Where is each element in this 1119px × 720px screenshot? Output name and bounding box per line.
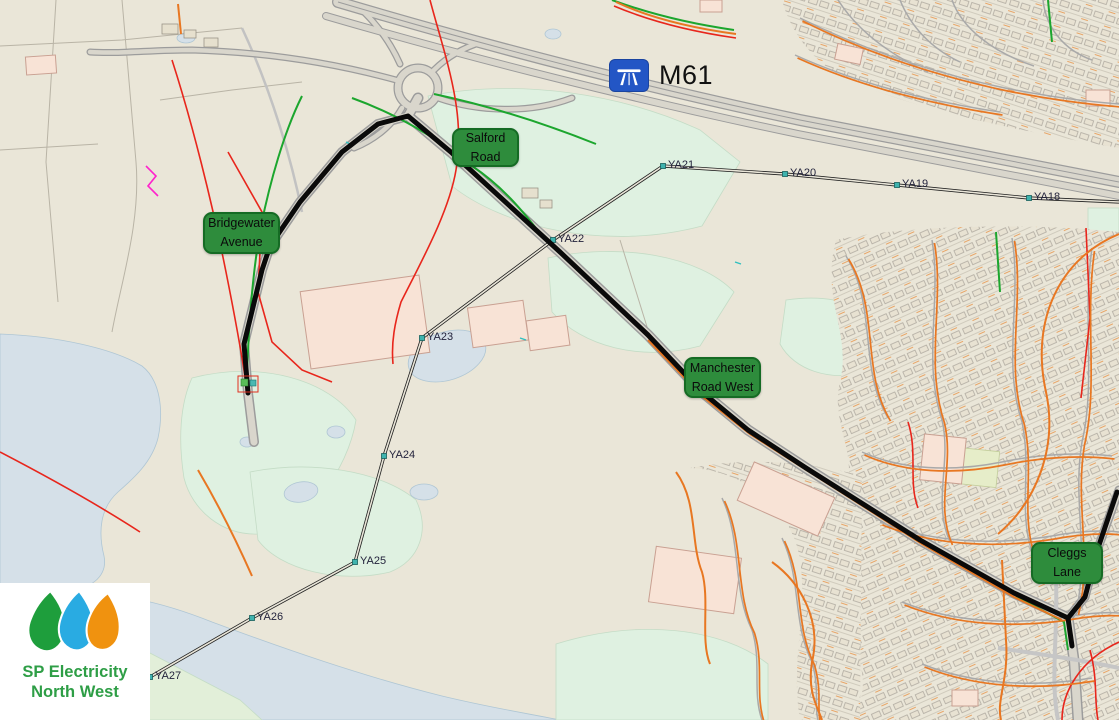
street-label-line2: Avenue <box>220 233 262 252</box>
street-label-line1: Manchester <box>690 359 755 378</box>
pylon-marker <box>420 336 425 341</box>
street-label-cleggs-lane: CleggsLane <box>1031 542 1103 584</box>
pylon-label: YA24 <box>389 449 415 461</box>
logo-drop-orange <box>87 593 120 650</box>
pylon-marker <box>661 164 666 169</box>
pylon-marker <box>1027 196 1032 201</box>
pylon-marker <box>353 560 358 565</box>
company-logo: SP Electricity North West <box>0 583 150 720</box>
street-label-salford-road: SalfordRoad <box>452 128 519 167</box>
pylon-label: YA19 <box>902 178 928 190</box>
pylon-marker <box>895 183 900 188</box>
street-label-line1: Salford <box>466 129 506 148</box>
street-label-line2: Lane <box>1053 563 1081 582</box>
motorway-marker: M61 <box>610 60 713 91</box>
pylon-label: YA18 <box>1034 191 1060 203</box>
pylon-marker <box>382 454 387 459</box>
pylon-marker <box>250 616 255 621</box>
street-label-line1: Cleggs <box>1048 544 1087 563</box>
pylon-label: YA27 <box>155 670 181 682</box>
street-label-manchester-road-west: ManchesterRoad West <box>684 357 761 398</box>
street-label-line1: Bridgewater <box>208 214 275 233</box>
map-canvas[interactable]: YA18YA19YA20YA21YA22YA23YA24YA25YA26YA27 <box>0 0 1119 720</box>
pylon-marker <box>783 172 788 177</box>
logo-text-line2: North West <box>22 683 127 703</box>
motorway-label: M61 <box>659 60 713 91</box>
pylon-label: YA21 <box>668 159 694 171</box>
street-label-bridgewater-avenue: BridgewaterAvenue <box>203 212 280 254</box>
map-viewport[interactable]: YA18YA19YA20YA21YA22YA23YA24YA25YA26YA27… <box>0 0 1119 720</box>
logo-drops-icon <box>25 589 125 661</box>
street-label-line2: Road <box>471 148 501 167</box>
pylon-label: YA22 <box>558 233 584 245</box>
logo-text-line1: SP Electricity <box>22 663 127 683</box>
street-label-line2: Road West <box>692 378 754 397</box>
pylon-label: YA23 <box>427 331 453 343</box>
logo-text: SP Electricity North West <box>22 663 127 703</box>
pylon-label: YA20 <box>790 167 816 179</box>
motorway-icon <box>610 60 648 91</box>
pylon-label: YA25 <box>360 555 386 567</box>
pylon-label: YA26 <box>257 611 283 623</box>
